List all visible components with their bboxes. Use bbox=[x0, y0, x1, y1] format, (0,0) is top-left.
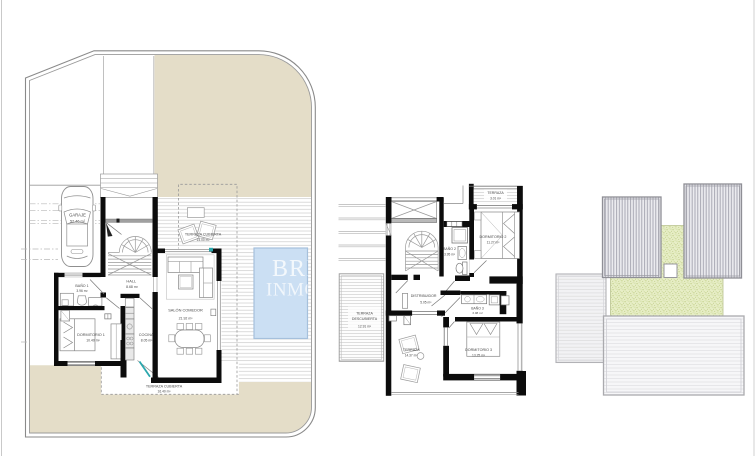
svg-text:3.08 m²: 3.08 m² bbox=[472, 311, 483, 315]
svg-text:TERRAZA: TERRAZA bbox=[403, 348, 420, 352]
svg-text:BAÑO 2: BAÑO 2 bbox=[443, 246, 456, 251]
svg-text:3.96 m²: 3.96 m² bbox=[76, 289, 88, 293]
svg-text:DISTRIBUIDOR: DISTRIBUIDOR bbox=[411, 294, 437, 298]
svg-text:DORMITORIO 2: DORMITORIO 2 bbox=[480, 235, 507, 239]
svg-text:12.91 m²: 12.91 m² bbox=[358, 325, 372, 329]
svg-text:COCINA: COCINA bbox=[139, 333, 154, 337]
svg-text:8.05 m²: 8.05 m² bbox=[141, 338, 153, 342]
svg-text:HALL: HALL bbox=[126, 278, 137, 283]
svg-text:3.01 m²: 3.01 m² bbox=[490, 196, 501, 200]
svg-text:DORMITORIO 1: DORMITORIO 1 bbox=[77, 333, 105, 337]
svg-text:10.40 m²: 10.40 m² bbox=[86, 338, 100, 342]
svg-text:SALÓN COMEDOR: SALÓN COMEDOR bbox=[168, 308, 203, 313]
svg-text:DESCUBIERTA: DESCUBIERTA bbox=[352, 317, 378, 321]
svg-text:11.27 m²: 11.27 m² bbox=[487, 241, 501, 245]
svg-text:TERRAZA CUBIERTA: TERRAZA CUBIERTA bbox=[185, 233, 222, 237]
svg-text:13.25 m²: 13.25 m² bbox=[472, 354, 486, 358]
svg-text:14.00 m²: 14.00 m² bbox=[196, 238, 210, 242]
svg-text:TERRAZA: TERRAZA bbox=[487, 191, 504, 195]
svg-text:14.37 m²: 14.37 m² bbox=[405, 354, 418, 358]
svg-text:BAÑO 3: BAÑO 3 bbox=[471, 306, 484, 311]
svg-text:5.05 m²: 5.05 m² bbox=[420, 300, 432, 304]
svg-text:BAÑO 1: BAÑO 1 bbox=[75, 283, 88, 288]
svg-text:DORMITORIO 3: DORMITORIO 3 bbox=[465, 348, 492, 352]
svg-text:TERRAZA CUBIERTA: TERRAZA CUBIERTA bbox=[146, 385, 183, 389]
svg-text:3.95 m²: 3.95 m² bbox=[444, 252, 455, 256]
svg-text:TERRAZA: TERRAZA bbox=[356, 312, 373, 316]
svg-text:52.46 m²: 52.46 m² bbox=[70, 220, 86, 224]
svg-text:GARAJE: GARAJE bbox=[69, 213, 86, 218]
svg-text:21.92 m²: 21.92 m² bbox=[179, 317, 194, 321]
svg-text:8.68 m²: 8.68 m² bbox=[126, 285, 139, 289]
svg-text:16.40 m²: 16.40 m² bbox=[157, 389, 171, 393]
